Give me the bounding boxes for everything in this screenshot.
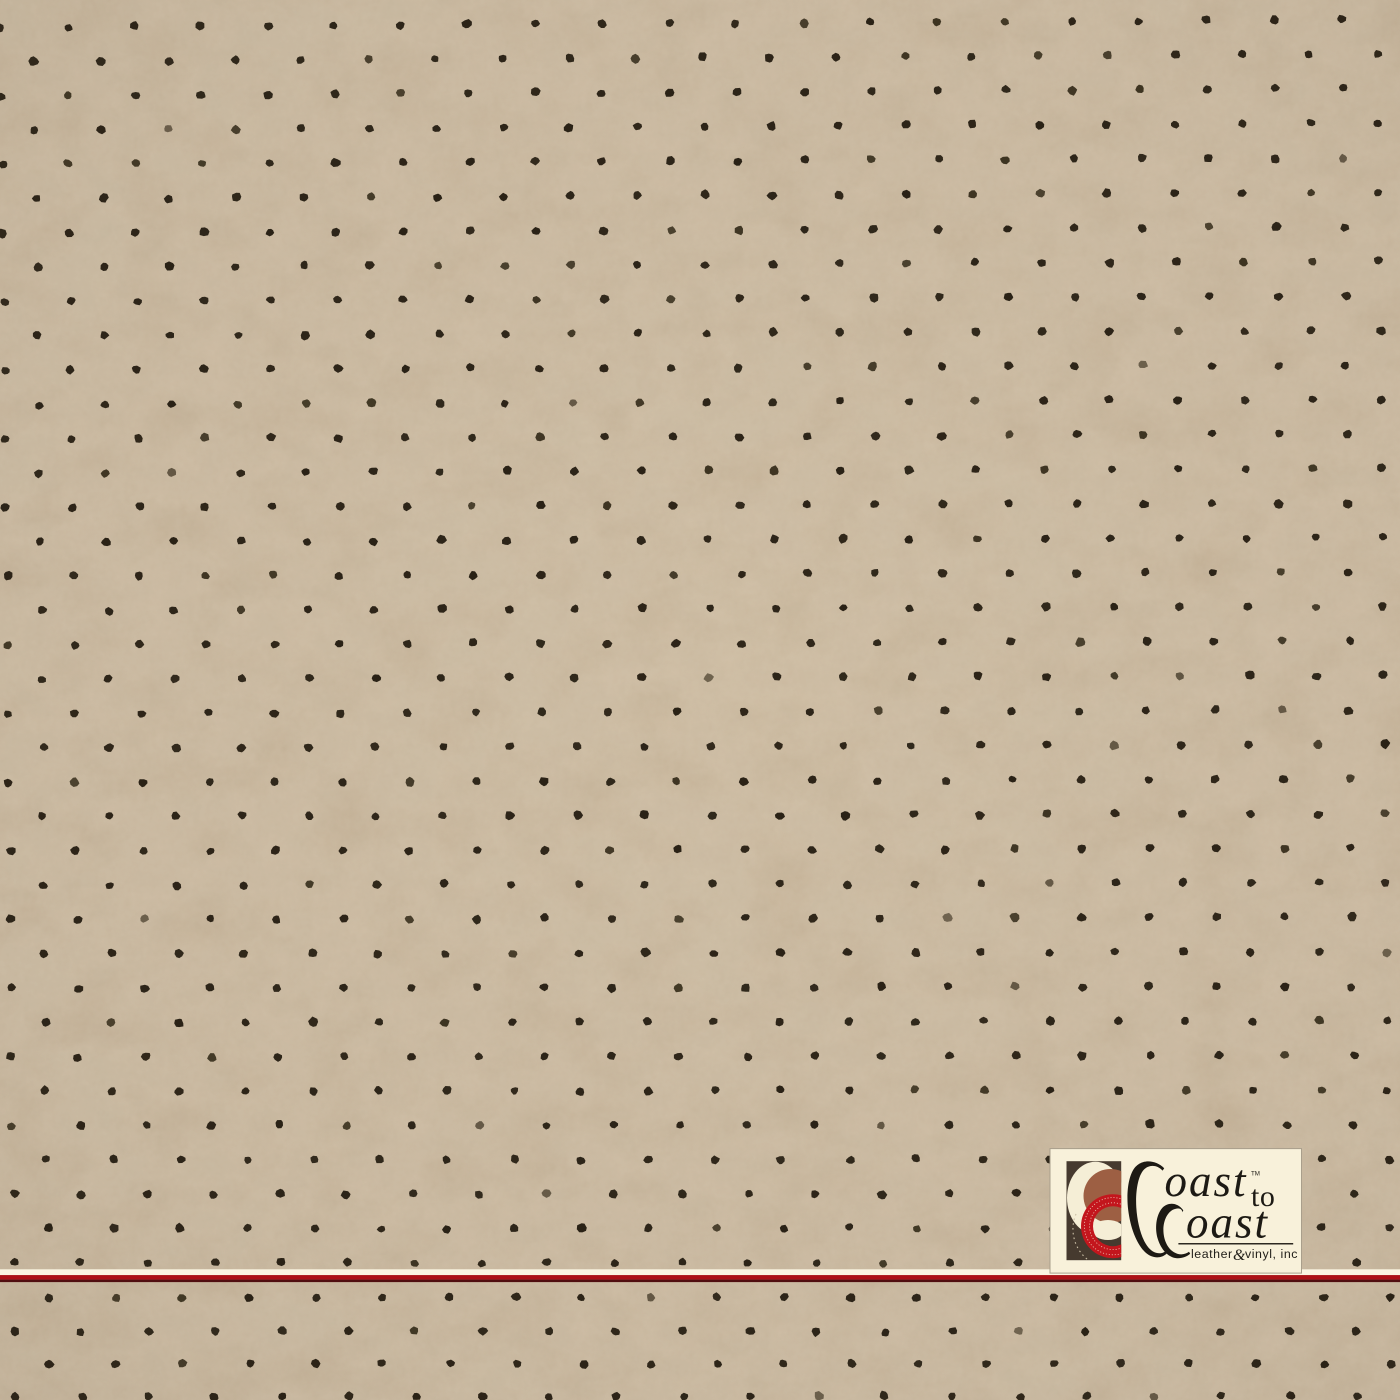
svg-text:TM: TM [1251,1171,1260,1178]
svg-text:oast: oast [1186,1198,1269,1248]
svg-text:vinyl, inc: vinyl, inc [1245,1247,1298,1261]
svg-text:leather: leather [1191,1247,1233,1261]
